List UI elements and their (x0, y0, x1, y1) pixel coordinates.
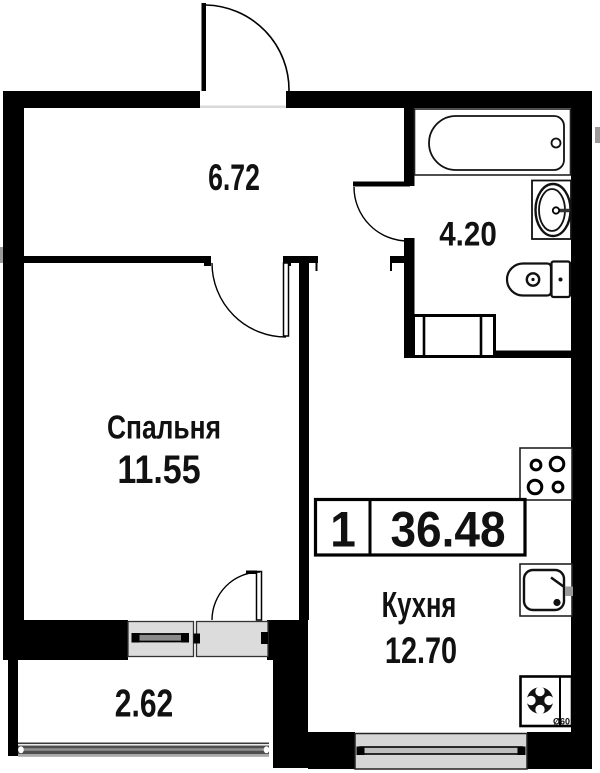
svg-text:36.48: 36.48 (390, 503, 505, 558)
svg-text:11.55: 11.55 (117, 446, 200, 491)
svg-text:2.62: 2.62 (115, 682, 173, 726)
svg-text:Кухня: Кухня (382, 585, 457, 625)
svg-text:4.20: 4.20 (439, 215, 497, 253)
svg-text:Спальня: Спальня (107, 410, 221, 446)
svg-text:12.70: 12.70 (385, 631, 457, 672)
svg-text:Ø60: Ø60 (553, 717, 570, 727)
svg-text:1: 1 (330, 503, 356, 558)
svg-text:6.72: 6.72 (208, 157, 260, 198)
